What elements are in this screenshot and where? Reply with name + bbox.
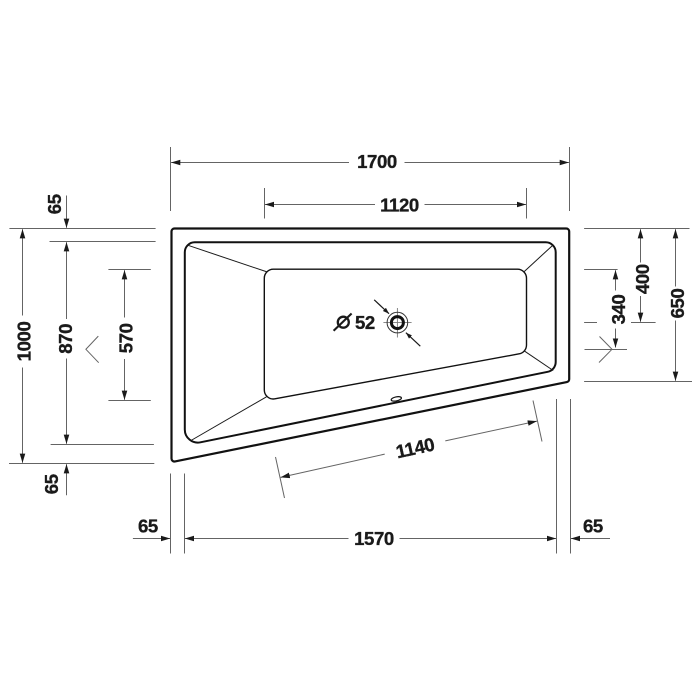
svg-text:1000: 1000 xyxy=(13,322,34,362)
svg-text:870: 870 xyxy=(55,324,76,354)
svg-text:650: 650 xyxy=(667,289,688,319)
svg-text:65: 65 xyxy=(583,515,603,536)
svg-text:400: 400 xyxy=(632,264,653,294)
svg-text:65: 65 xyxy=(138,515,158,536)
svg-text:1700: 1700 xyxy=(357,151,397,172)
svg-text:1120: 1120 xyxy=(380,194,419,215)
svg-text:340: 340 xyxy=(608,295,629,325)
svg-text:65: 65 xyxy=(44,194,65,214)
svg-text:1570: 1570 xyxy=(354,528,394,549)
svg-text:52: 52 xyxy=(355,312,375,333)
svg-text:570: 570 xyxy=(115,323,136,353)
svg-text:65: 65 xyxy=(41,474,62,494)
